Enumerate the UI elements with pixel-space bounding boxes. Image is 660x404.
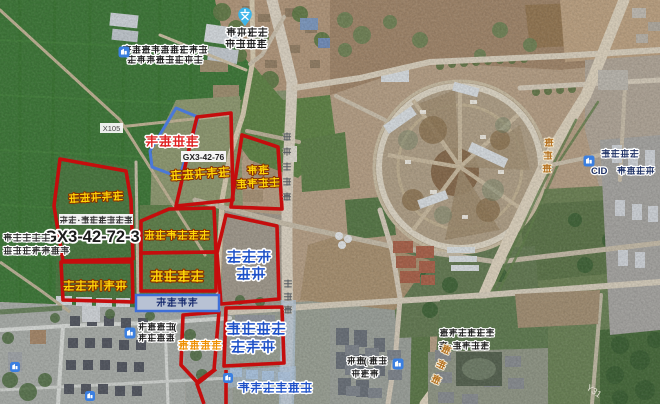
svg-text:X105: X105 [103,124,121,133]
svg-text:GX3-42-76: GX3-42-76 [183,152,225,162]
svg-text:GX3-42-72-3: GX3-42-72-3 [44,228,139,246]
svg-text:CID: CID [591,166,608,177]
